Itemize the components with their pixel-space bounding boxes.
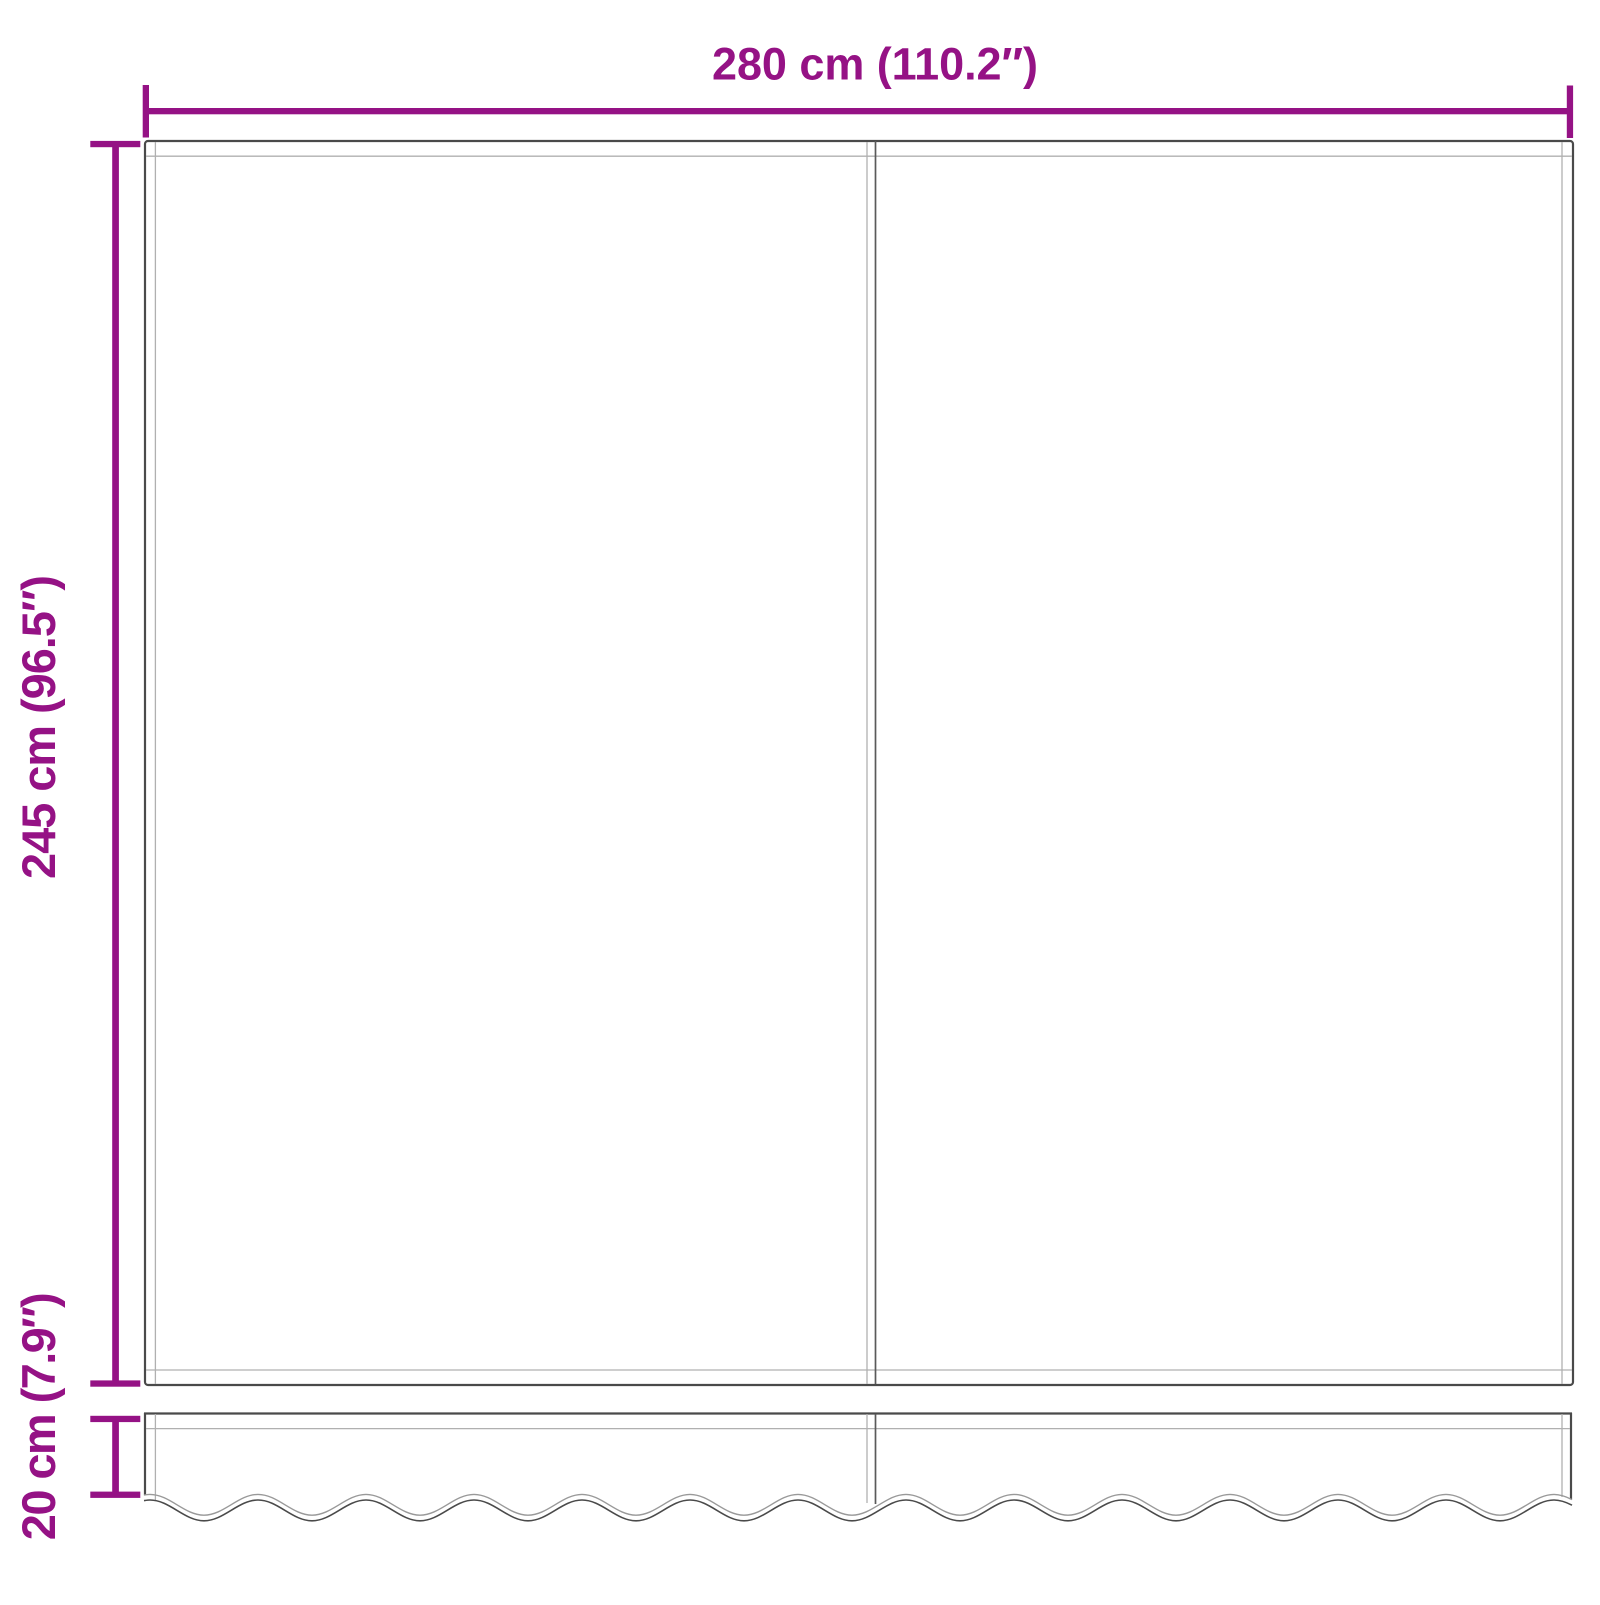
svg-text:245 cm (96.5″): 245 cm (96.5″) [12,575,65,879]
svg-text:20 cm (7.9″): 20 cm (7.9″) [12,1292,65,1540]
svg-text:280 cm (110.2″): 280 cm (110.2″) [712,39,1038,90]
